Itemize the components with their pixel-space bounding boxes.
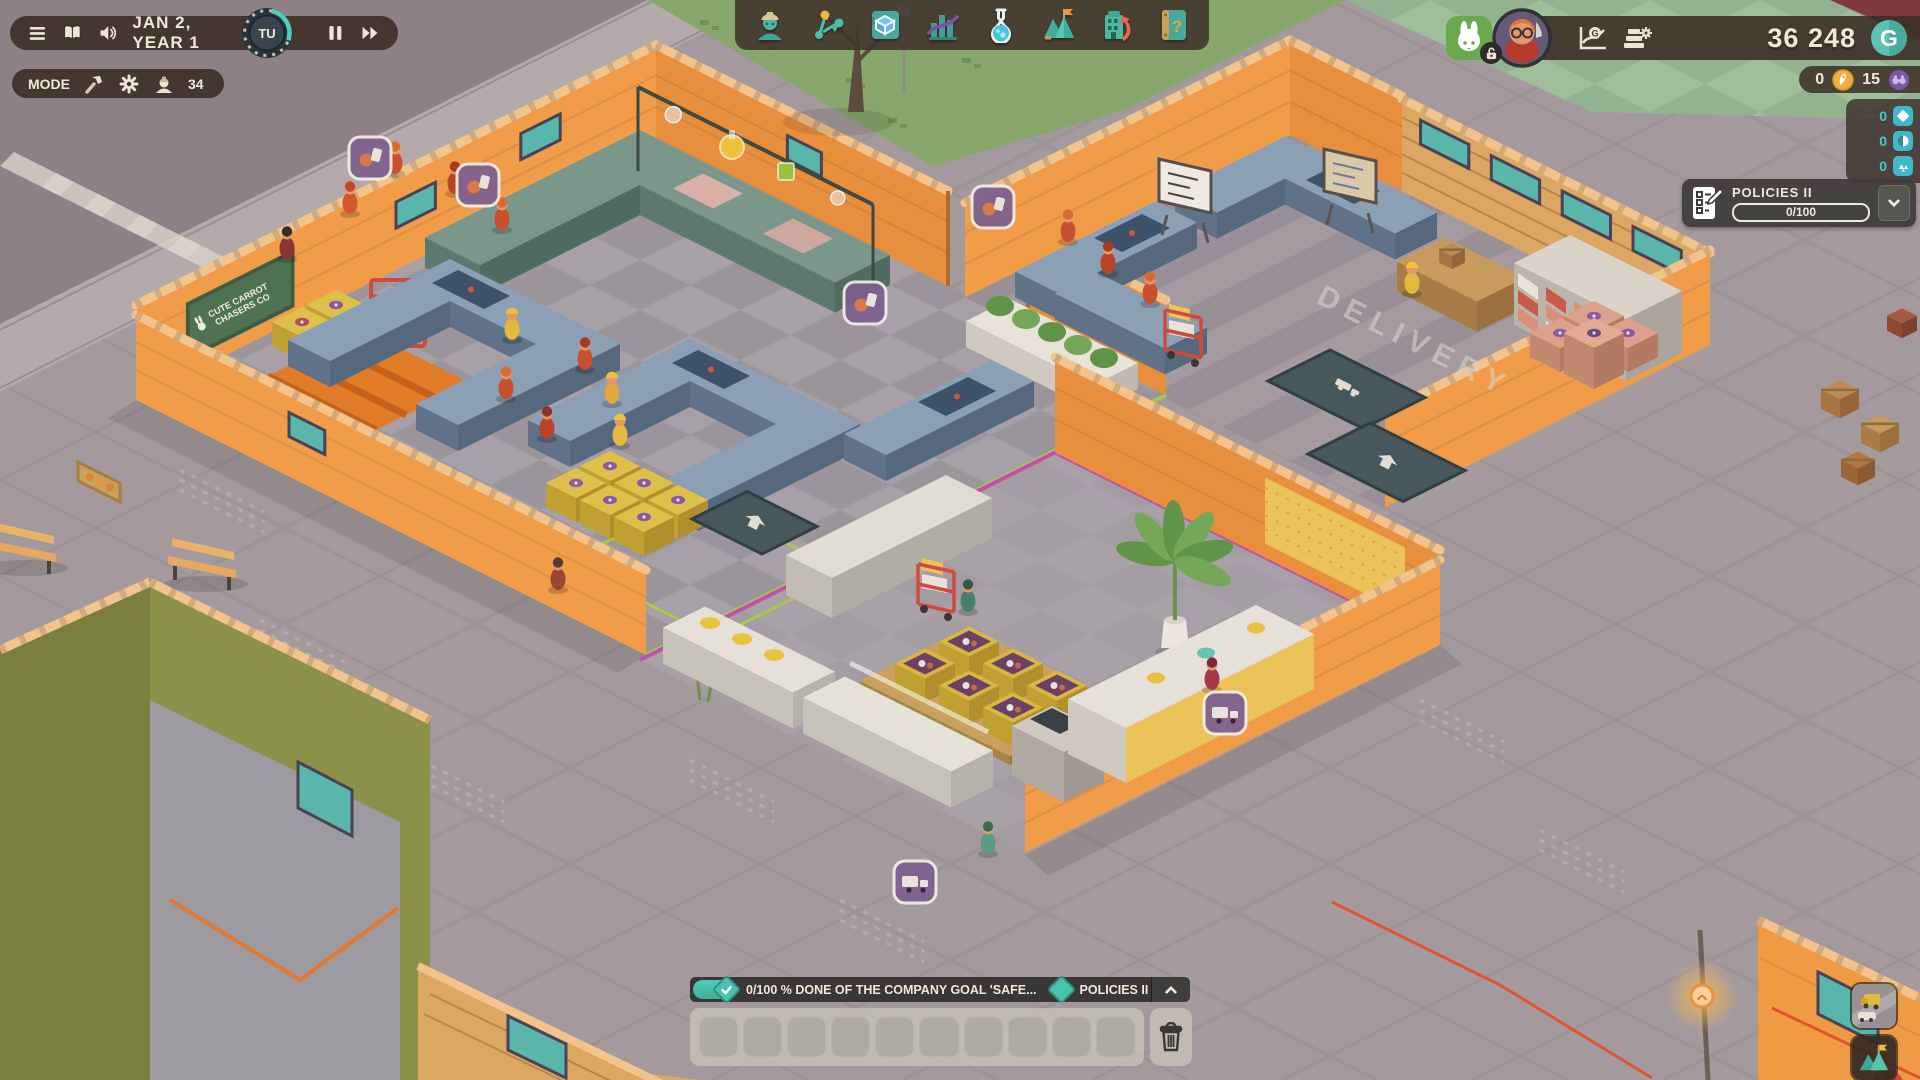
time-unit-button[interactable]: TU bbox=[240, 6, 294, 60]
trash-icon bbox=[1158, 1022, 1184, 1052]
research-points-panel: 0 0 0 bbox=[1846, 99, 1920, 183]
fast-forward-button[interactable] bbox=[361, 22, 380, 44]
milestones-shortcut-button[interactable] bbox=[1852, 1036, 1896, 1080]
toolbar-company-button[interactable] bbox=[1094, 3, 1138, 47]
game-scene[interactable]: CUTE CARROTCHASERS CODELIVERY bbox=[0, 0, 1920, 1080]
hotbar-slot[interactable] bbox=[743, 1017, 782, 1057]
currency-coin-icon: G bbox=[1870, 19, 1908, 57]
toolbar-blueprints-button[interactable] bbox=[863, 3, 907, 47]
journal-icon[interactable] bbox=[63, 22, 82, 44]
hotbar-slot[interactable] bbox=[1096, 1017, 1135, 1057]
toolbar-logistics-button[interactable] bbox=[806, 3, 850, 47]
chevron-down-icon bbox=[1887, 196, 1901, 210]
hotbar-slot[interactable] bbox=[699, 1017, 738, 1057]
mode-bar: MODE 34 bbox=[12, 69, 224, 98]
mountain-flag-icon bbox=[1857, 1041, 1891, 1075]
mode-label: MODE bbox=[28, 76, 70, 92]
lock-icon bbox=[1480, 42, 1502, 64]
svg-text:G: G bbox=[1591, 29, 1598, 39]
toolbar-handbook-button[interactable]: ? bbox=[1152, 3, 1196, 47]
rocket-coin-icon bbox=[1832, 69, 1854, 91]
toolbar-research-button[interactable] bbox=[979, 3, 1023, 47]
settings-gear-icon[interactable] bbox=[118, 73, 140, 95]
svg-text:TU: TU bbox=[258, 26, 275, 41]
hotbar-slot[interactable] bbox=[831, 1017, 870, 1057]
game-screen: CUTE CARROTCHASERS CODELIVERY JAN 2, YEA… bbox=[0, 0, 1920, 1080]
milestone-label: POLICIES II bbox=[1080, 983, 1149, 997]
build-hammer-icon[interactable] bbox=[83, 73, 105, 95]
main-toolbar: ? bbox=[735, 0, 1209, 50]
date-label: JAN 2, YEAR 1 bbox=[132, 13, 245, 53]
sound-icon[interactable] bbox=[98, 22, 117, 44]
hotbar-slots bbox=[690, 1008, 1144, 1066]
toolbar-statistics-button[interactable] bbox=[921, 3, 965, 47]
check-icon bbox=[721, 984, 733, 996]
toolbar-milestones-button[interactable] bbox=[1037, 3, 1081, 47]
shard-point-icon bbox=[1893, 156, 1913, 176]
milestone-diamond-icon bbox=[1046, 975, 1076, 1005]
time-bar: JAN 2, YEAR 1 bbox=[10, 16, 398, 50]
orb-point-icon bbox=[1893, 131, 1913, 151]
chevron-up-icon bbox=[1164, 983, 1178, 997]
goal-collapse-button[interactable] bbox=[1151, 977, 1190, 1002]
company-goal-bar[interactable]: 0/100 % DONE OF THE COMPANY GOAL 'SAFE..… bbox=[690, 977, 1190, 1002]
trash-button[interactable] bbox=[1150, 1008, 1192, 1066]
policies-collapse-button[interactable] bbox=[1878, 185, 1910, 221]
hotbar-slot[interactable] bbox=[964, 1017, 1003, 1057]
minimap-button[interactable] bbox=[1852, 984, 1896, 1028]
policies-panel[interactable]: POLICIES II 0/100 bbox=[1682, 179, 1916, 227]
research-point-row: 0 bbox=[1853, 131, 1913, 151]
worker-count-icon bbox=[153, 73, 175, 95]
money-balance: 36 248 bbox=[1767, 23, 1856, 54]
avatar-button[interactable] bbox=[1492, 8, 1552, 68]
finance-graph-icon[interactable]: G bbox=[1578, 25, 1608, 51]
diamond-point-icon bbox=[1893, 106, 1913, 126]
binoculars-coin-icon bbox=[1888, 69, 1910, 91]
booster-bar: 0 15 bbox=[1799, 66, 1920, 93]
balance-sheet-icon[interactable] bbox=[1622, 25, 1652, 51]
hotbar-slot[interactable] bbox=[919, 1017, 958, 1057]
goal-progress-text: 0/100 % DONE OF THE COMPANY GOAL 'SAFE..… bbox=[746, 983, 1037, 997]
rocket-token-count: 0 bbox=[1815, 71, 1824, 89]
policies-progress: 0/100 bbox=[1732, 203, 1870, 222]
research-point-row: 0 bbox=[1853, 156, 1913, 176]
hotbar-slot[interactable] bbox=[1052, 1017, 1091, 1057]
svg-text:G: G bbox=[1880, 25, 1898, 51]
svg-text:?: ? bbox=[1172, 17, 1182, 36]
toolbar-employees-button[interactable] bbox=[748, 3, 792, 47]
hotbar-slot[interactable] bbox=[787, 1017, 826, 1057]
hotbar-slot[interactable] bbox=[1008, 1017, 1047, 1057]
wallet-area: G 36 248 G bbox=[1446, 12, 1920, 68]
scout-token-count: 15 bbox=[1862, 71, 1880, 89]
worker-count: 34 bbox=[188, 76, 204, 92]
wallet-bar: G 36 248 G bbox=[1506, 16, 1920, 60]
research-point-row: 0 bbox=[1853, 106, 1913, 126]
menu-icon[interactable] bbox=[28, 22, 47, 44]
policies-title: POLICIES II bbox=[1732, 185, 1870, 200]
hotbar-slot[interactable] bbox=[875, 1017, 914, 1057]
pause-button[interactable] bbox=[326, 22, 345, 44]
policies-checklist-icon bbox=[1690, 185, 1724, 221]
